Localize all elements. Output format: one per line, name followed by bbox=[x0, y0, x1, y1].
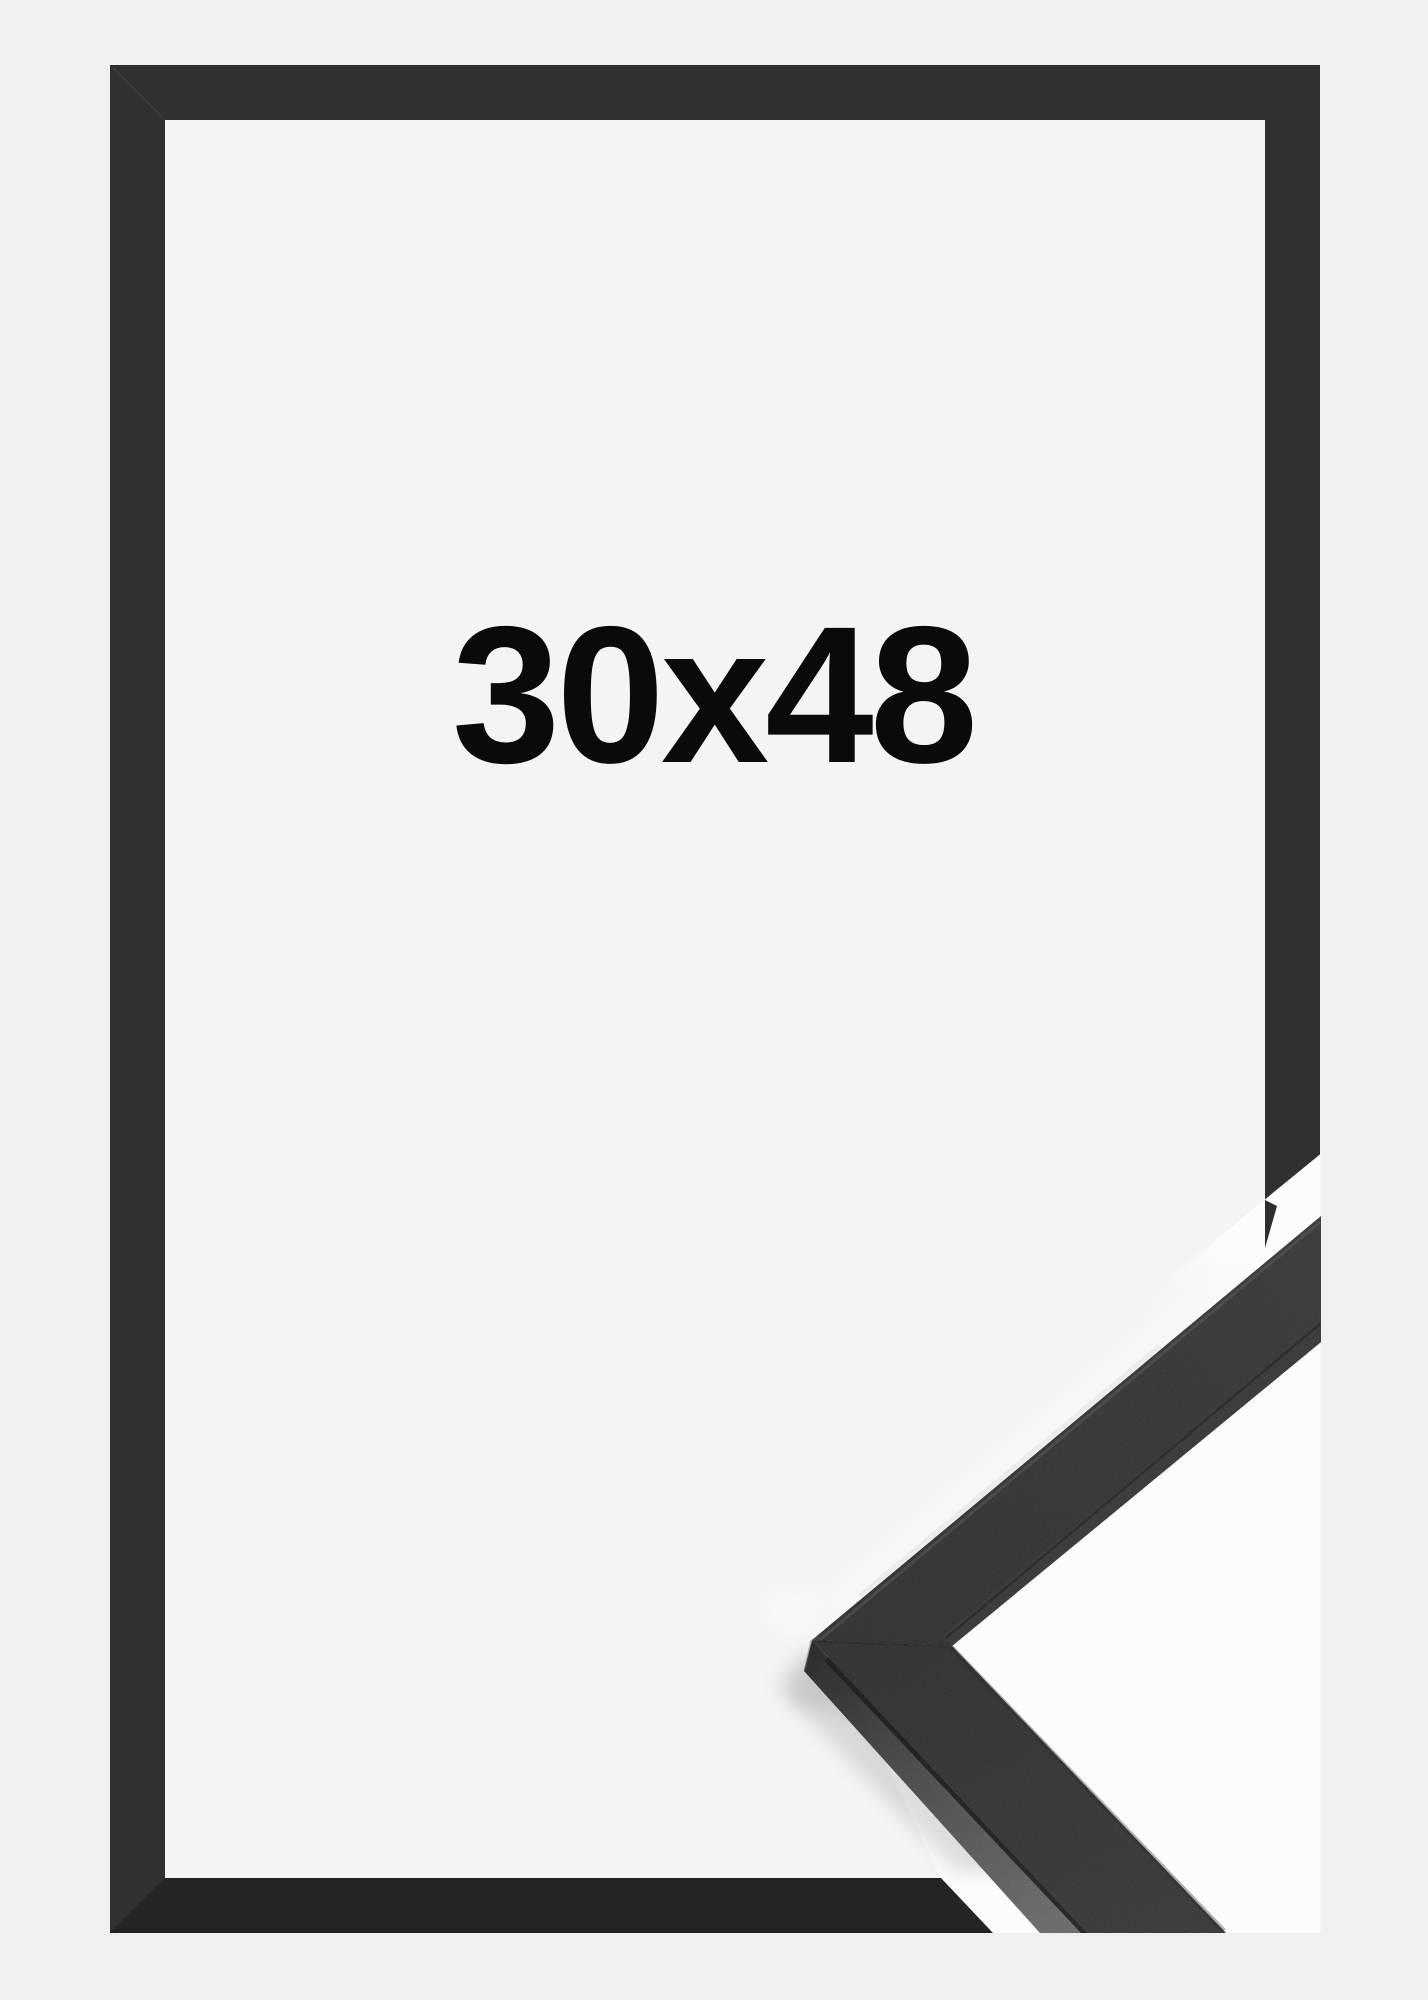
svg-text:30x48: 30x48 bbox=[452, 586, 974, 804]
